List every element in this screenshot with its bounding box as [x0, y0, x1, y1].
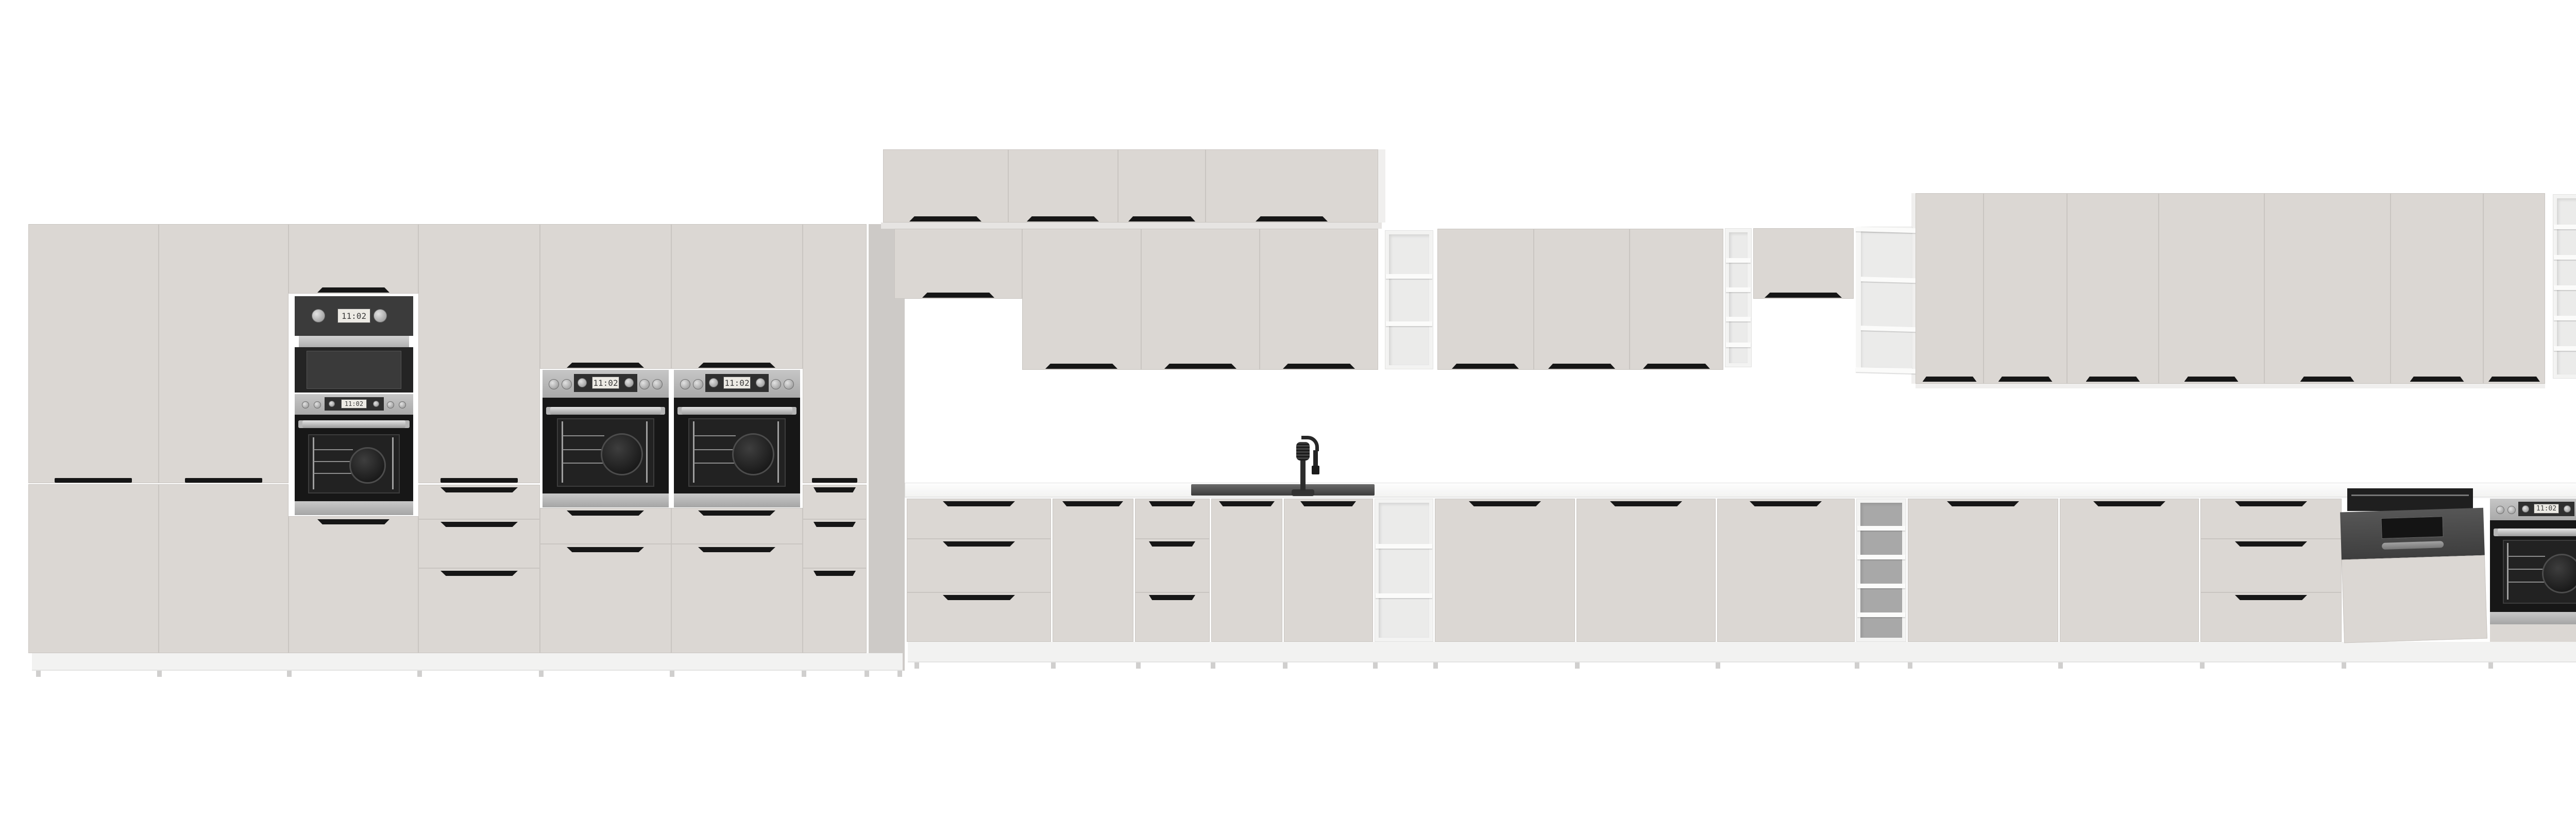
block-door-3-handle: [2086, 377, 2140, 382]
oven-right-knob-1: [680, 379, 690, 389]
tall-6-top-door-handle: [698, 363, 775, 368]
base-cubby-column-shelf-3: [1857, 584, 1905, 588]
hood-bridge-door: [1753, 228, 1854, 299]
wall-tall-door-2-handle: [1548, 364, 1615, 369]
wall-mid-bridge-door: [894, 229, 1022, 299]
hood-cubby-column-shelf-2: [1726, 287, 1751, 292]
block-door-7: [2483, 193, 2545, 384]
tall-7-drawer-2-handle: [814, 522, 856, 527]
base-door-4-handle: [1750, 501, 1822, 506]
base-run-feet-8: [1575, 662, 1580, 669]
built-in-oven-base-knob-2: [2507, 506, 2516, 514]
base-drawer-1c-handle: [943, 595, 1015, 600]
oven-right-knob-timer: [709, 378, 718, 387]
faucet-spout: [1301, 436, 1319, 451]
base-run-feet-1: [914, 662, 919, 669]
tall-section-feet-7: [802, 671, 806, 677]
block-door-1: [1916, 193, 1984, 384]
tall-5-bottom-door: [540, 544, 671, 653]
dishwasher-rack: [2351, 495, 2469, 496]
oven-left-display: 11:02: [592, 377, 620, 389]
oven-left-panel-inset: 11:02: [574, 374, 637, 393]
tall-section-feet-2: [157, 671, 162, 677]
oven-right-door-handle: [677, 407, 796, 415]
oven-left-knob-timer: [578, 378, 587, 387]
oven-column-3-rack-rail-1: [314, 449, 353, 450]
dishwasher-display: [2381, 516, 2443, 539]
oven-left-knob-1: [549, 379, 559, 389]
sink-base-door-right: [1284, 499, 1373, 642]
tall-section-feet-6: [670, 671, 674, 677]
base-run-feet-9: [1716, 662, 1720, 669]
base-open-shelf-sink-shelf-2: [1376, 593, 1432, 598]
oven-right-rack-rail-2: [694, 449, 736, 450]
oven-base-filler: [2490, 624, 2576, 642]
tall-7-drawer-1-handle: [814, 487, 856, 492]
tall-section-feet-8: [865, 671, 869, 677]
base-drawer-2c-handle: [1149, 595, 1195, 600]
wall-tall-door-3: [1630, 229, 1723, 370]
wall-top-door-3: [1118, 149, 1206, 223]
base-run-plinth: [908, 642, 2576, 662]
base-cubby-column-interior: [1860, 503, 1902, 638]
oven-left-knob-3: [639, 379, 650, 389]
wall-top-door-4: [1206, 149, 1378, 223]
oven-column-3-knob-1: [302, 401, 309, 408]
tall-7-door: [803, 224, 867, 483]
built-in-oven-base-knob-program: [2564, 505, 2571, 513]
compact-oven-control-panel: 11:02: [295, 296, 413, 336]
wall-top-door-1-handle: [909, 216, 981, 221]
oven-column-3-control-panel: 11:02: [295, 394, 413, 415]
oven-right-knob-2: [693, 379, 703, 389]
base-run-feet-7: [1433, 662, 1438, 669]
oven-right-knob-3: [771, 379, 781, 389]
block-door-5: [2264, 193, 2391, 384]
base-run-feet-4: [1211, 662, 1215, 669]
base-drawer-3b-handle: [2235, 541, 2307, 547]
base-run-feet-13: [2200, 662, 2205, 669]
base-cubby-column-shelf-2: [1857, 555, 1905, 559]
base-run-feet-11: [1908, 662, 1912, 669]
shelf-column-c-shelf-5: [2554, 346, 2576, 351]
tall-4-door-handle: [440, 478, 518, 483]
wall-open-shelf-sink-shelf-1: [1386, 274, 1432, 279]
oven-column-3-round-pan: [349, 447, 386, 484]
base-open-shelf-sink-shelf-1: [1376, 544, 1432, 549]
dishwasher-panel: [2342, 555, 2487, 643]
oven-column-3-rack-rail-2: [314, 461, 353, 462]
wall-top-underboard: [881, 223, 1382, 229]
hood-corner-shelf-interior: [1860, 231, 1912, 368]
hood-cubby-column-shelf-3: [1726, 317, 1751, 321]
base-door-5-handle: [1947, 501, 2019, 506]
block-door-7-handle: [2488, 377, 2540, 382]
wall-top-door-2: [1008, 149, 1118, 223]
tall-5-bottom-door-handle: [567, 547, 644, 552]
hood-bridge-door-handle: [1765, 293, 1842, 298]
block-bottom-board: [1916, 384, 2545, 388]
built-in-oven-base-bottom-trim: [2490, 612, 2576, 624]
base-door-2-handle: [1469, 501, 1541, 506]
tall-6-bottom-door: [671, 544, 803, 653]
tall-4-drawer-1-handle: [440, 487, 518, 492]
oven-left-control-panel: 11:02: [543, 370, 669, 398]
tall-section-feet-1: [36, 671, 41, 677]
oven-column-3-rack-rail-3: [314, 473, 353, 474]
block-door-6: [2391, 193, 2483, 384]
tall-1-lower-door: [28, 484, 159, 653]
block-door-1-handle: [1923, 377, 1977, 382]
tall-1-upper-door: [28, 224, 159, 483]
oven-left-knob-program: [624, 378, 634, 387]
kitchen-render: 11:0211:0211:0211:0211:02: [0, 0, 2576, 818]
oven-right-knob-4: [784, 379, 794, 389]
base-door-4: [1717, 499, 1855, 642]
wall-tall-door-3-handle: [1643, 364, 1710, 369]
wall-mid-door-3-handle: [1164, 364, 1236, 369]
wall-tall-door-2: [1534, 229, 1630, 370]
wall-tall-door-1: [1437, 229, 1534, 370]
oven-left-knob-2: [562, 379, 572, 389]
tall-section-feet-5: [539, 671, 544, 677]
oven-right-control-panel: 11:02: [674, 370, 800, 398]
oven-left-rack-rail-2: [563, 449, 604, 450]
tall-5-drawer-handle: [567, 510, 644, 516]
base-open-shelf-sink-interior: [1379, 503, 1429, 638]
tall-1-upper-door-handle: [55, 478, 132, 483]
oven-right-rack-right: [777, 421, 779, 483]
base-door-6: [2060, 499, 2199, 642]
wall-top-door-4-handle: [1256, 216, 1328, 221]
tall-section-feet-3: [287, 671, 292, 677]
oven-column-3-knob-program: [373, 401, 379, 407]
wall-open-shelf-sink-shelf-2: [1386, 321, 1432, 326]
shelf-column-c-shelf-2: [2554, 255, 2576, 260]
base-door-1-handle: [1062, 501, 1123, 506]
built-in-oven-base-knob-timer: [2522, 505, 2529, 513]
tall-4-drawer-3-handle: [440, 571, 518, 576]
oven-column-3-knob-timer: [329, 401, 335, 407]
wall-mid-door-2: [1022, 229, 1141, 370]
base-drawer-2b: [1135, 539, 1210, 592]
base-cubby-column-shelf-1: [1857, 526, 1905, 531]
base-cubby-column-shelf-4: [1857, 612, 1905, 617]
oven-right-bottom-trim: [674, 493, 800, 507]
wall-open-shelf-sink-interior: [1389, 234, 1429, 365]
tall-3-bottom-door-handle: [317, 519, 389, 524]
oven-left-knob-4: [652, 379, 663, 389]
oven-right-knob-program: [756, 378, 765, 387]
base-door-2: [1435, 499, 1575, 642]
base-drawer-3a-handle: [2235, 501, 2307, 506]
faucet-sprayer: [1312, 466, 1319, 474]
base-run-feet-12: [2058, 662, 2063, 669]
oven-column-3-knob-3: [387, 401, 394, 408]
wall-mid-door-4: [1260, 229, 1378, 370]
base-drawer-3c-handle: [2235, 595, 2307, 600]
compact-oven-display: 11:02: [337, 309, 370, 323]
base-run-feet-6: [1373, 662, 1378, 669]
oven-right-display: 11:02: [723, 377, 751, 389]
block-door-4: [2159, 193, 2264, 384]
oven-left-rack-left: [562, 421, 563, 483]
tall-7-door-handle: [812, 478, 857, 483]
base-drawer-1a-handle: [943, 501, 1015, 506]
dishwasher-front: [2340, 508, 2487, 643]
block-door-2: [1984, 193, 2067, 384]
oven-column-3-panel-inset: 11:02: [325, 397, 384, 411]
tall-3-bottom-door: [289, 516, 418, 653]
sink: [1191, 484, 1375, 496]
wall-mid-door-2-handle: [1045, 364, 1117, 369]
wall-top-door-1: [883, 149, 1008, 223]
oven-right-panel-inset: 11:02: [705, 374, 769, 393]
tall-section-feet-9: [897, 671, 902, 677]
built-in-oven-base-display: 11:02: [2534, 504, 2558, 514]
wall-tall-door-1-handle: [1452, 364, 1519, 369]
tall-2-lower-door: [159, 484, 289, 653]
wall-top-door-3-handle: [1128, 216, 1195, 221]
base-door-3-handle: [1610, 501, 1682, 506]
base-run-feet-15: [2488, 662, 2493, 669]
tall-7-drawer-3: [803, 568, 867, 653]
compact-oven-door-handle: [299, 336, 409, 347]
base-door-5: [1908, 499, 2058, 642]
oven-column-3-door-handle: [298, 420, 410, 428]
wall-top-row-side-panel: [1378, 149, 1385, 223]
built-in-oven-base-rack-rail-3: [2508, 582, 2545, 583]
oven-column-3-knob-2: [314, 401, 321, 408]
oven-column-3-rack-left: [313, 437, 314, 489]
shelf-column-c-shelf-3: [2554, 285, 2576, 290]
hood-corner-shelf-bottom-board: [1856, 367, 1916, 373]
faucet-hose: [1313, 450, 1318, 467]
built-in-oven-base-door-handle: [2494, 529, 2576, 536]
base-drawer-1b: [907, 539, 1051, 592]
tall-3-top-door-handle: [317, 287, 389, 293]
built-in-oven-base-knob-1: [2496, 506, 2504, 514]
tall-6-drawer-handle: [698, 510, 775, 516]
oven-right-rack-rail-1: [694, 435, 736, 436]
tall-6-bottom-door-handle: [698, 547, 775, 552]
block-door-5-handle: [2300, 377, 2354, 382]
built-in-oven-base-rack-left: [2507, 543, 2509, 600]
oven-right-round-pan: [732, 433, 774, 475]
faucet-stem: [1300, 456, 1306, 490]
wall-top-door-2-handle: [1027, 216, 1099, 221]
tall-2-upper-door: [159, 224, 289, 483]
sink-base-door-right-handle: [1300, 501, 1356, 506]
shelf-column-c-shelf-4: [2554, 316, 2576, 320]
base-drawer-1b-handle: [943, 541, 1015, 547]
block-door-3: [2067, 193, 2159, 384]
oven-left-door-handle: [546, 407, 665, 415]
oven-left-bottom-trim: [543, 493, 669, 507]
tall-4-door: [418, 224, 540, 483]
base-run-feet-10: [1855, 662, 1859, 669]
tall-section-plinth: [32, 653, 903, 671]
tall-4-drawer-3: [418, 568, 540, 653]
base-door-3: [1577, 499, 1716, 642]
dishwasher-interior: [2347, 488, 2473, 511]
tall-5-top-door-handle: [567, 363, 644, 368]
oven-left-rack-right: [646, 421, 648, 483]
oven-column-3-knob-4: [399, 401, 406, 408]
tall-6-top-door: [671, 224, 803, 369]
oven-left-rack-rail-1: [563, 435, 604, 436]
base-run-feet-14: [2342, 662, 2346, 669]
built-in-oven-base-control-panel: 11:02: [2490, 499, 2576, 520]
block-door-6-handle: [2410, 377, 2464, 382]
compact-oven-knob-left: [312, 309, 325, 322]
oven-column-3-display: 11:02: [341, 399, 367, 408]
wall-mid-door-4-handle: [1283, 364, 1355, 369]
compact-oven-cavity: [307, 351, 401, 389]
wall-mid-door-3: [1141, 229, 1260, 370]
hood-cubby-column-shelf-1: [1726, 258, 1751, 263]
sink-base-door-left: [1211, 499, 1282, 642]
sink-base-door-left-handle: [1219, 501, 1275, 506]
countertop: [905, 483, 2576, 497]
oven-column-3-bottom-trim: [295, 501, 413, 515]
base-drawer-2b-handle: [1149, 541, 1195, 547]
built-in-oven-base-panel-inset: 11:02: [2518, 502, 2575, 516]
base-run-feet-2: [1051, 662, 1056, 669]
base-drawer-3b: [2200, 539, 2342, 592]
block-door-4-handle: [2184, 377, 2239, 382]
hood-cubby-column-shelf-4: [1726, 343, 1751, 347]
base-run-feet-3: [1136, 662, 1141, 669]
built-in-oven-base-rack-rail-2: [2508, 569, 2545, 570]
oven-left-round-pan: [601, 433, 643, 475]
wall-mid-bridge-door-handle: [922, 293, 994, 298]
tall-4-drawer-2-handle: [440, 522, 518, 527]
base-door-1: [1053, 499, 1133, 642]
hood-corner-shelf-spine: [1856, 227, 1861, 372]
tall-3-top-door: [289, 224, 418, 294]
shelf-column-c-shelf-1: [2554, 225, 2576, 229]
compact-oven-knob-right: [374, 309, 387, 322]
base-drawer-2a-handle: [1149, 501, 1195, 506]
built-in-oven-base-rack-rail-1: [2508, 556, 2545, 557]
base-run-feet-5: [1283, 662, 1287, 669]
tall-2-upper-door-handle: [185, 478, 262, 483]
oven-left-rack-rail-3: [563, 463, 604, 464]
block-door-2-handle: [1998, 377, 2053, 382]
tall-5-top-door: [540, 224, 671, 369]
tall-7-drawer-3-handle: [814, 571, 856, 576]
oven-right-rack-left: [693, 421, 694, 483]
tall-section-feet-4: [417, 671, 422, 677]
oven-right-rack-rail-3: [694, 463, 736, 464]
base-door-6-handle: [2093, 501, 2165, 506]
oven-column-3-rack-right: [392, 437, 394, 489]
